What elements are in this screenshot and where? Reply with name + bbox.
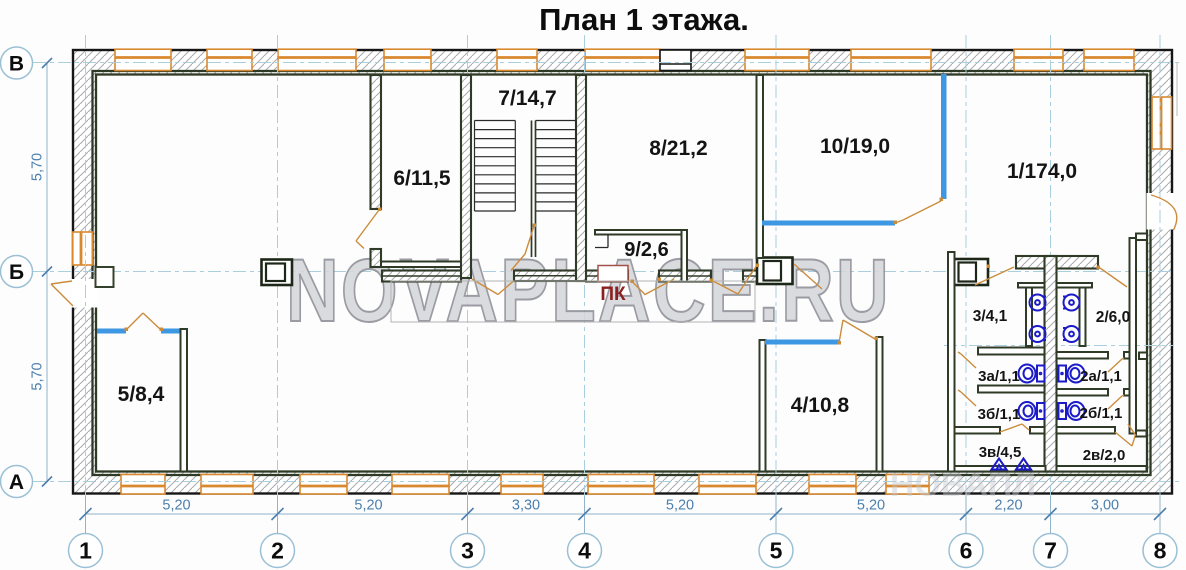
svg-text:4: 4 — [578, 538, 591, 564]
svg-text:5,70: 5,70 — [30, 153, 46, 181]
svg-text:7: 7 — [1044, 538, 1057, 564]
svg-text:6: 6 — [960, 538, 973, 564]
svg-text:5: 5 — [770, 538, 783, 564]
svg-text:2: 2 — [271, 538, 284, 564]
svg-text:2/6,0: 2/6,0 — [1096, 309, 1130, 326]
svg-text:2,20: 2,20 — [994, 498, 1022, 514]
svg-text:В: В — [9, 53, 24, 76]
svg-text:5,20: 5,20 — [354, 498, 382, 514]
svg-text:2в/2,0: 2в/2,0 — [1083, 447, 1126, 464]
svg-text:5,20: 5,20 — [666, 498, 694, 514]
svg-text:3,00: 3,00 — [1091, 498, 1119, 514]
svg-text:7/14,7: 7/14,7 — [498, 87, 556, 110]
svg-text:5,70: 5,70 — [30, 362, 46, 390]
svg-text:8: 8 — [1154, 538, 1167, 564]
svg-text:5,20: 5,20 — [857, 498, 885, 514]
svg-text:5/8,4: 5/8,4 — [118, 383, 165, 406]
svg-text:3б/1,1: 3б/1,1 — [978, 406, 1021, 423]
svg-text:10/19,0: 10/19,0 — [820, 135, 890, 158]
svg-text:1: 1 — [79, 538, 92, 564]
svg-text:4/10,8: 4/10,8 — [791, 394, 850, 417]
svg-text:3: 3 — [461, 538, 474, 564]
svg-text:2б/1,1: 2б/1,1 — [1080, 405, 1123, 422]
svg-text:8/21,2: 8/21,2 — [649, 137, 707, 160]
svg-text:6/11,5: 6/11,5 — [393, 167, 451, 190]
svg-text:9/2,6: 9/2,6 — [624, 239, 668, 261]
svg-text:А: А — [9, 471, 24, 494]
svg-text:1/174,0: 1/174,0 — [1007, 160, 1077, 183]
svg-text:3в/4,5: 3в/4,5 — [979, 444, 1022, 461]
svg-text:5,20: 5,20 — [162, 498, 190, 514]
svg-text:3,30: 3,30 — [512, 498, 540, 514]
svg-text:2а/1,1: 2а/1,1 — [1080, 368, 1122, 385]
svg-text:ПК: ПК — [600, 284, 626, 305]
svg-text:3/4,1: 3/4,1 — [973, 308, 1008, 325]
svg-text:3а/1,1: 3а/1,1 — [978, 368, 1020, 385]
svg-text:Б: Б — [9, 261, 24, 284]
svg-text:План 1 этажа.: План 1 этажа. — [539, 2, 749, 37]
